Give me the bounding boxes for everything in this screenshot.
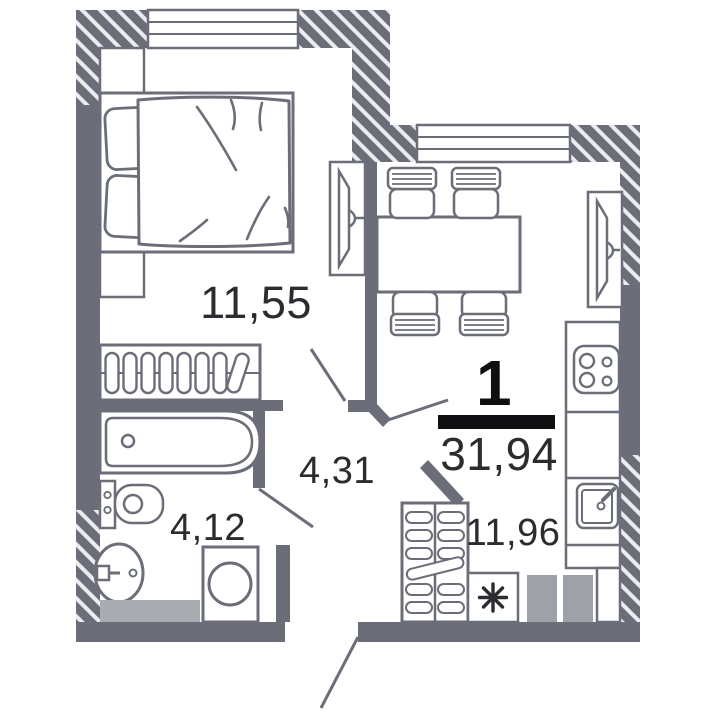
floor-plan-drawing: 11,55 4,31 4,12 11,96 1 31,94 (0, 0, 720, 720)
washing-machine (203, 547, 258, 622)
bathtub (100, 411, 260, 473)
tv-screen (597, 201, 607, 298)
tv-screen (339, 171, 349, 266)
wall-left-upper (76, 10, 100, 105)
dining-table (377, 217, 520, 292)
wall-bedroom-kitchen (365, 162, 377, 405)
double-bed (100, 93, 293, 252)
kitchen-tv (588, 192, 622, 307)
wall-bottom-left (76, 622, 285, 642)
entrance-door-leaf (321, 637, 358, 708)
bathroom-area-label: 4,12 (170, 507, 246, 549)
wall-bedroom-right (352, 48, 390, 162)
bathroom-cabinet (100, 600, 200, 622)
bedroom-window (148, 10, 298, 48)
nightstand-top (100, 48, 144, 93)
washer-place (468, 573, 518, 622)
bathroom-sink (95, 544, 143, 602)
apartment-summary: 1 31,94 (438, 347, 558, 480)
faucet (97, 566, 109, 580)
kitchen-sink (577, 484, 618, 528)
rooms-count-label: 1 (476, 347, 512, 419)
total-area-label: 31,94 (440, 428, 558, 480)
floor-plan: 11,55 4,31 4,12 11,96 1 31,94 (0, 0, 720, 720)
toilet-tank (100, 481, 115, 528)
toilet-bowl (115, 485, 163, 523)
wall-bathroom-east-lower (276, 545, 290, 622)
kitchen-window (417, 125, 570, 162)
chair (460, 292, 508, 335)
hallway-area-label: 4,31 (299, 450, 375, 492)
appliance-fridge (527, 575, 557, 622)
bedroom-door-leaf (311, 349, 345, 401)
wall-right-middle (620, 285, 640, 455)
chair (391, 292, 439, 335)
wall-bottom-right (358, 622, 640, 642)
summary-divider-bar (438, 415, 555, 429)
counter-end-cabinet (597, 568, 620, 622)
bedroom-furniture (100, 48, 365, 400)
asterisk-icon (480, 584, 507, 611)
toilet (100, 481, 163, 528)
bedroom-area-label: 11,55 (200, 277, 312, 328)
wall-left-middle (76, 105, 100, 510)
wall-bedroom-bathroom (98, 400, 283, 411)
chair (388, 168, 436, 218)
wall-right-lower (620, 455, 640, 622)
stove (574, 346, 619, 393)
bathroom-door-leaf (259, 489, 313, 527)
nightstand-bottom (100, 252, 144, 297)
appliance-fridge (563, 575, 593, 622)
chair (452, 168, 500, 218)
blanket (138, 97, 290, 246)
bedroom-tv (330, 162, 365, 275)
bedroom-wardrobe (100, 345, 260, 400)
hallway-wardrobe (402, 503, 468, 622)
kitchen-area-label: 11,96 (466, 512, 561, 554)
